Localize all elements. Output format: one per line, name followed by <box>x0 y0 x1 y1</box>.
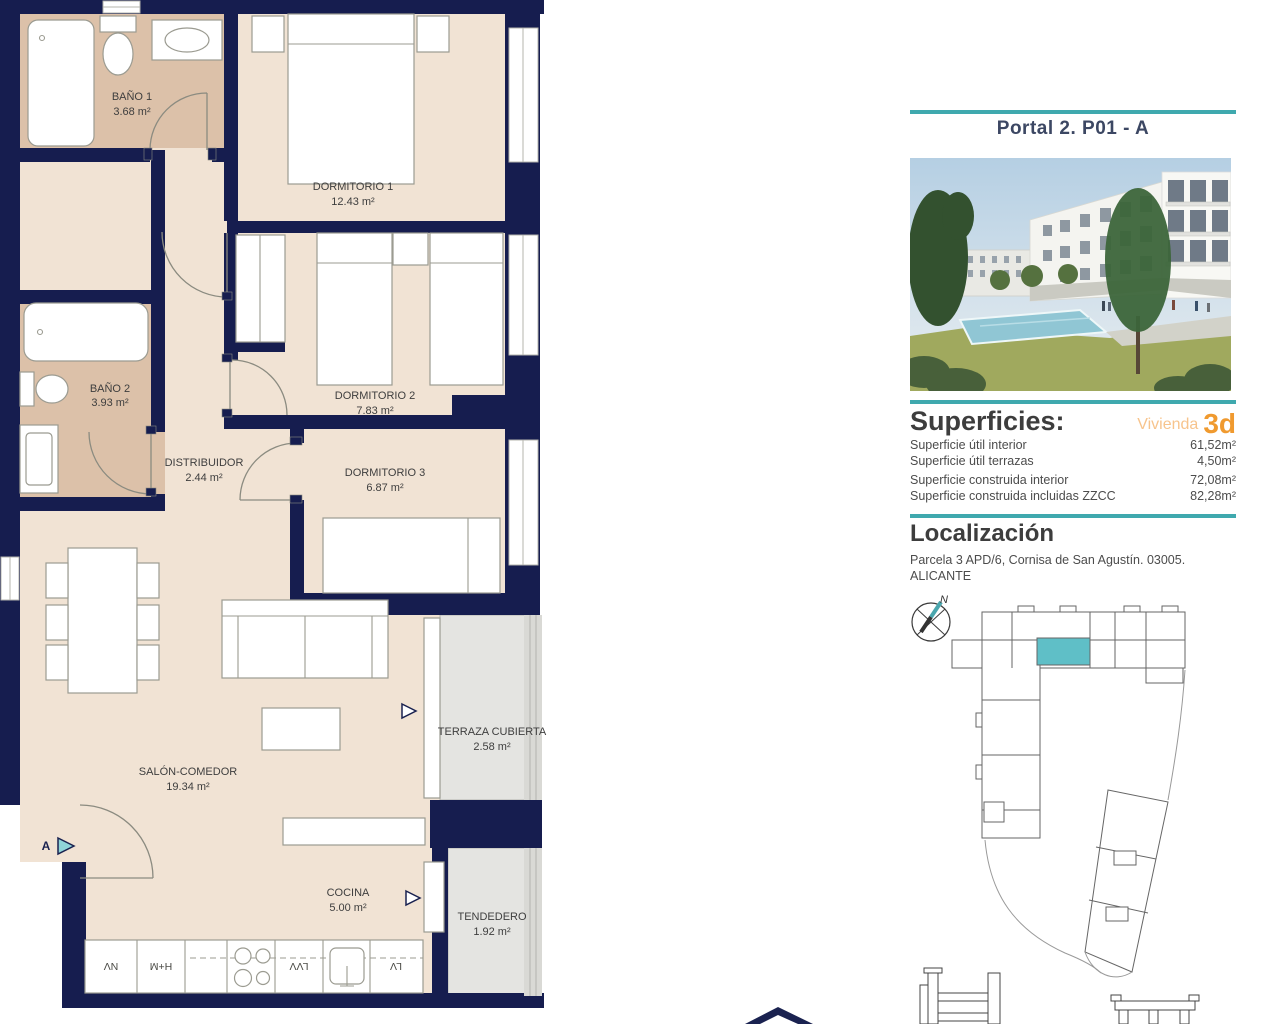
section-fragment <box>1111 995 1199 1024</box>
chair <box>137 645 159 680</box>
superficie-value: 4,50m² <box>1197 453 1236 469</box>
coffee-table <box>262 708 340 750</box>
address-line: Parcela 3 APD/6, Cornisa de San Agustín.… <box>910 552 1236 568</box>
floorplan: NV H+M LVV LV A BAÑO 13.68 m² DORMITORIO… <box>0 0 565 1024</box>
entrance-label: A <box>42 839 51 853</box>
logo-partial-icon <box>700 1006 860 1024</box>
single-bed <box>430 233 503 385</box>
bed <box>323 518 500 593</box>
superficie-label: Superficie útil terrazas <box>910 453 1034 469</box>
toilet-tank <box>100 16 136 32</box>
nightstand <box>393 233 428 265</box>
toilet-bowl <box>36 375 68 403</box>
compass-north-label: N <box>940 595 948 606</box>
chair <box>137 605 159 640</box>
appliance-label-nv: NV <box>104 960 119 972</box>
superficies-section: Superficies: Vivienda 3d Superficie útil… <box>910 406 1236 504</box>
hob-burner <box>257 972 270 985</box>
hob-burner <box>235 970 252 987</box>
bathtub <box>28 20 94 146</box>
chair <box>137 563 159 598</box>
building-render-photo <box>910 158 1231 391</box>
hob-burner <box>235 948 251 964</box>
toilet-tank <box>20 372 34 406</box>
section-fragment <box>920 968 1000 1024</box>
superficie-row: Superficie construida incluidas ZZCC 82,… <box>910 488 1236 504</box>
superficie-value: 72,08m² <box>1190 472 1236 488</box>
nightstand <box>252 16 284 52</box>
page-title: Portal 2. P01 - A <box>910 118 1236 140</box>
vivienda-label: Vivienda <box>1137 416 1198 437</box>
exterior-bottom-left <box>0 862 62 1024</box>
angled-building <box>1085 790 1168 972</box>
tv-bench <box>283 818 425 845</box>
superficie-row: Superficie útil interior 61,52m² <box>910 437 1236 453</box>
superficie-label: Superficie útil interior <box>910 437 1027 453</box>
chair <box>46 605 68 640</box>
nightstand <box>417 16 449 52</box>
divider-superficies <box>910 400 1236 404</box>
superficie-label: Superficie construida interior <box>910 472 1068 488</box>
superficie-row: Superficie construida interior 72,08m² <box>910 472 1236 488</box>
vivienda-type-badge: 3d <box>1203 411 1236 437</box>
appliance-label-lv: LV <box>390 960 402 972</box>
single-bed <box>317 233 392 385</box>
appliance-label-lvv: LVV <box>289 960 308 972</box>
appliance-label-hm: H+M <box>150 960 172 972</box>
kitchen-counter: NV H+M LVV LV <box>85 940 423 993</box>
double-bed <box>288 14 414 184</box>
chair <box>46 563 68 598</box>
address-line: ALICANTE <box>910 568 1236 584</box>
divider-localizacion <box>910 514 1236 518</box>
dining-table <box>68 548 137 693</box>
highlighted-unit <box>1037 638 1090 665</box>
compass-icon: N <box>912 595 950 641</box>
hob-burner <box>256 949 270 963</box>
toilet-bowl <box>103 33 133 75</box>
superficie-row: Superficie útil terrazas 4,50m² <box>910 453 1236 469</box>
localizacion-section: Localización Parcela 3 APD/6, Cornisa de… <box>910 520 1236 584</box>
divider-top <box>910 110 1236 114</box>
superficie-value: 82,28m² <box>1190 488 1236 504</box>
localizacion-heading: Localización <box>910 520 1236 548</box>
dormitorio3-furniture <box>323 518 500 593</box>
chair <box>46 645 68 680</box>
superficies-heading: Superficies: <box>910 406 1065 437</box>
superficie-label: Superficie construida incluidas ZZCC <box>910 488 1116 504</box>
site-plan: N <box>900 595 1280 1024</box>
terraza-floor <box>440 615 528 800</box>
superficie-value: 61,52m² <box>1190 437 1236 453</box>
center-tree <box>1105 188 1171 332</box>
